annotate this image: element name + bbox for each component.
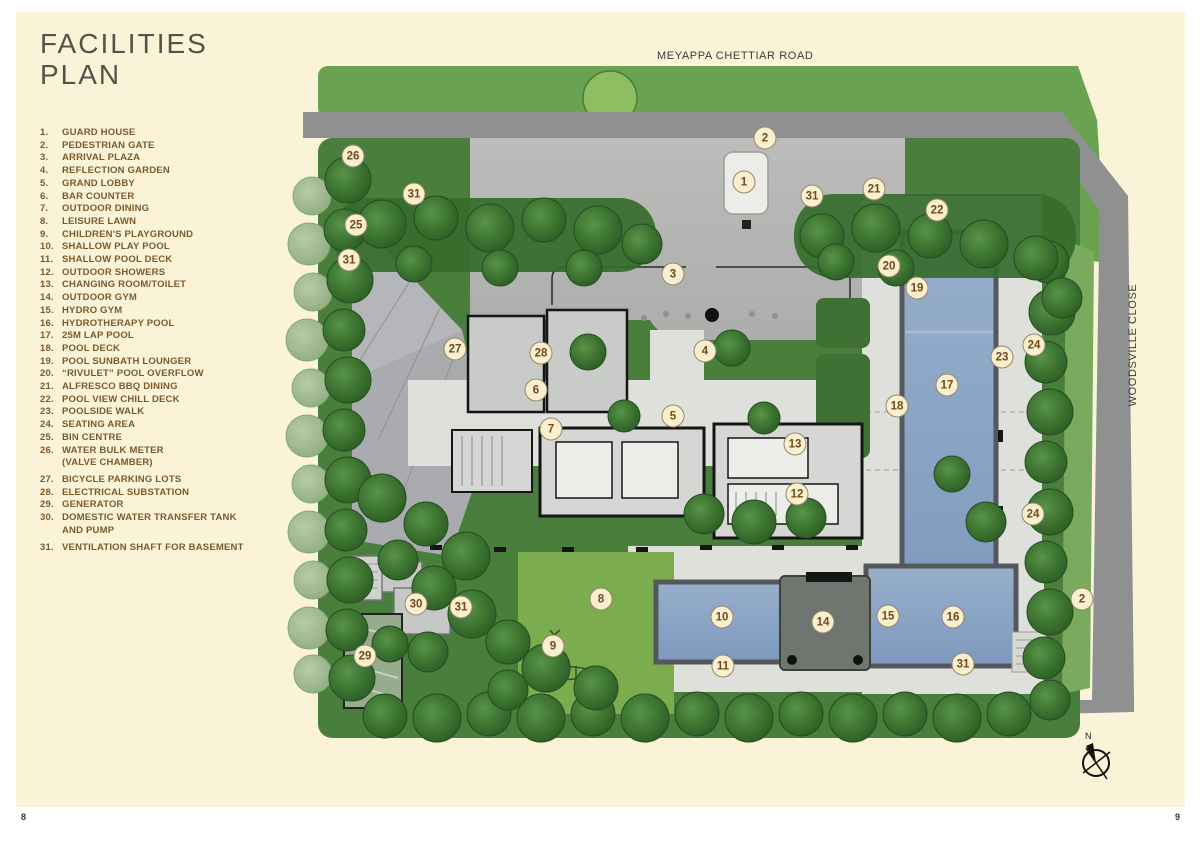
- legend-item-label: OUTDOOR SHOWERS: [62, 267, 290, 280]
- legend-item-number: 4.: [40, 165, 62, 178]
- legend-item: 31.VENTILATION SHAFT FOR BASEMENT: [40, 542, 290, 555]
- page-number-left: 8: [21, 812, 26, 822]
- facility-marker-16: 16: [942, 606, 965, 629]
- facility-marker-18: 18: [886, 395, 909, 418]
- legend-item-number: 24.: [40, 419, 62, 432]
- legend-item: 3.ARRIVAL PLAZA: [40, 152, 290, 165]
- legend-item: 7.OUTDOOR DINING: [40, 203, 290, 216]
- legend-item: 1.GUARD HOUSE: [40, 127, 290, 140]
- legend-item-label: POOL DECK: [62, 343, 290, 356]
- brochure-page: FACILITIES PLAN 1.GUARD HOUSE2.PEDESTRIA…: [0, 0, 1200, 846]
- legend-item-label: VENTILATION SHAFT FOR BASEMENT: [62, 542, 290, 555]
- legend-item-label: SHALLOW POOL DECK: [62, 254, 290, 267]
- legend-item-number: 14.: [40, 292, 62, 305]
- facility-marker-7: 7: [540, 418, 563, 441]
- legend-item: 9.CHILDREN'S PLAYGROUND: [40, 229, 290, 242]
- facility-marker-6: 6: [525, 379, 548, 402]
- legend-item: 19.POOL SUNBATH LOUNGER: [40, 356, 290, 369]
- legend-item: 20.“RIVULET” POOL OVERFLOW: [40, 368, 290, 381]
- legend-item: 2.PEDESTRIAN GATE: [40, 140, 290, 153]
- legend-item: 16.HYDROTHERAPY POOL: [40, 318, 290, 331]
- facility-marker-31: 31: [338, 249, 361, 272]
- legend-item-label: HYDRO GYM: [62, 305, 290, 318]
- legend-item: 27.BICYCLE PARKING LOTS: [40, 474, 290, 487]
- legend-item: 25.BIN CENTRE: [40, 432, 290, 445]
- facility-marker-13: 13: [784, 433, 807, 456]
- facility-marker-20: 20: [878, 255, 901, 278]
- facility-marker-26: 26: [342, 145, 365, 168]
- legend-item-number: 17.: [40, 330, 62, 343]
- compass-icon: [1083, 743, 1110, 779]
- page-title-line2: PLAN: [40, 59, 208, 90]
- facility-marker-14: 14: [812, 611, 835, 634]
- legend-item-label: DOMESTIC WATER TRANSFER TANKAND PUMP: [62, 512, 290, 537]
- legend-item-number: 21.: [40, 381, 62, 394]
- compass-north-label: N: [1085, 731, 1092, 741]
- legend-item: 4.REFLECTION GARDEN: [40, 165, 290, 178]
- legend-item-label: BAR COUNTER: [62, 191, 290, 204]
- facility-marker-4: 4: [694, 340, 717, 363]
- legend-item-label: BIN CENTRE: [62, 432, 290, 445]
- legend-item-label: 25M LAP POOL: [62, 330, 290, 343]
- facility-marker-29: 29: [354, 645, 377, 668]
- legend-item: 10.SHALLOW PLAY POOL: [40, 241, 290, 254]
- facility-marker-31: 31: [450, 596, 473, 619]
- legend-item-number: 10.: [40, 241, 62, 254]
- legend-item: 12.OUTDOOR SHOWERS: [40, 267, 290, 280]
- legend-item-label: ELECTRICAL SUBSTATION: [62, 487, 290, 500]
- facility-marker-23: 23: [991, 346, 1014, 369]
- legend-item-number: 23.: [40, 406, 62, 419]
- legend-item: 18.POOL DECK: [40, 343, 290, 356]
- facility-marker-3: 3: [662, 263, 685, 286]
- page-title-line1: FACILITIES: [40, 28, 208, 59]
- road-label-top: MEYAPPA CHETTIAR ROAD: [657, 50, 813, 62]
- legend-item: 5.GRAND LOBBY: [40, 178, 290, 191]
- facility-marker-2: 2: [1071, 588, 1094, 611]
- legend-item-number: 28.: [40, 487, 62, 500]
- legend-item: 17.25M LAP POOL: [40, 330, 290, 343]
- facility-marker-31: 31: [403, 183, 426, 206]
- facility-marker-11: 11: [712, 655, 735, 678]
- legend-item: 15.HYDRO GYM: [40, 305, 290, 318]
- legend-item-label: ALFRESCO BBQ DINING: [62, 381, 290, 394]
- legend-item-label: GUARD HOUSE: [62, 127, 290, 140]
- legend-item-number: 16.: [40, 318, 62, 331]
- legend-item-number: 5.: [40, 178, 62, 191]
- legend-item-number: 13.: [40, 279, 62, 292]
- legend-item-number: 2.: [40, 140, 62, 153]
- legend-item-number: 9.: [40, 229, 62, 242]
- facility-marker-2: 2: [754, 127, 777, 150]
- legend-item-number: 8.: [40, 216, 62, 229]
- legend-item-label: “RIVULET” POOL OVERFLOW: [62, 368, 290, 381]
- legend-item-number: 22.: [40, 394, 62, 407]
- legend-item: 6.BAR COUNTER: [40, 191, 290, 204]
- legend-item: 22.POOL VIEW CHILL DECK: [40, 394, 290, 407]
- legend-item: 8.LEISURE LAWN: [40, 216, 290, 229]
- road-label-right: WOODSVILLE CLOSE: [1127, 284, 1139, 407]
- legend-item: 21.ALFRESCO BBQ DINING: [40, 381, 290, 394]
- legend-item-label: GENERATOR: [62, 499, 290, 512]
- facility-marker-17: 17: [936, 374, 959, 397]
- legend-item-label: CHILDREN'S PLAYGROUND: [62, 229, 290, 242]
- legend-item-number: 15.: [40, 305, 62, 318]
- legend-item: 13.CHANGING ROOM/TOILET: [40, 279, 290, 292]
- legend-item-number: 26.: [40, 445, 62, 470]
- facility-marker-24: 24: [1023, 334, 1046, 357]
- legend-item-number: 19.: [40, 356, 62, 369]
- legend-item: 26.WATER BULK METER(VALVE CHAMBER): [40, 445, 290, 470]
- legend-item-label: GRAND LOBBY: [62, 178, 290, 191]
- legend-item-label: POOLSIDE WALK: [62, 406, 290, 419]
- plaza-tree-dot: [705, 308, 719, 322]
- legend-item-number: 31.: [40, 542, 62, 555]
- legend-item: 24.SEATING AREA: [40, 419, 290, 432]
- legend-item-number: 11.: [40, 254, 62, 267]
- facility-marker-15: 15: [877, 605, 900, 628]
- facility-marker-5: 5: [662, 405, 685, 428]
- legend-item-label: POOL SUNBATH LOUNGER: [62, 356, 290, 369]
- legend-item-label: POOL VIEW CHILL DECK: [62, 394, 290, 407]
- legend-item-label: OUTDOOR DINING: [62, 203, 290, 216]
- facility-marker-19: 19: [906, 277, 929, 300]
- legend-item: 30.DOMESTIC WATER TRANSFER TANKAND PUMP: [40, 512, 290, 537]
- legend-item-label: HYDROTHERAPY POOL: [62, 318, 290, 331]
- facility-marker-21: 21: [863, 178, 886, 201]
- facility-marker-10: 10: [711, 606, 734, 629]
- facility-marker-24: 24: [1022, 503, 1045, 526]
- legend-item-label: PEDESTRIAN GATE: [62, 140, 290, 153]
- legend-item-label: WATER BULK METER(VALVE CHAMBER): [62, 445, 290, 470]
- page-title: FACILITIES PLAN: [40, 28, 208, 91]
- legend-item-number: 27.: [40, 474, 62, 487]
- legend-item: 14.OUTDOOR GYM: [40, 292, 290, 305]
- page-number-right: 9: [1175, 812, 1180, 822]
- legend-item: 28.ELECTRICAL SUBSTATION: [40, 487, 290, 500]
- legend-item-number: 29.: [40, 499, 62, 512]
- facility-marker-30: 30: [405, 593, 428, 616]
- legend-item: 29.GENERATOR: [40, 499, 290, 512]
- legend-item-label: ARRIVAL PLAZA: [62, 152, 290, 165]
- facility-marker-1: 1: [733, 171, 756, 194]
- legend-item-number: 30.: [40, 512, 62, 537]
- legend-item-label: SHALLOW PLAY POOL: [62, 241, 290, 254]
- legend-item-number: 25.: [40, 432, 62, 445]
- legend-item-label: CHANGING ROOM/TOILET: [62, 279, 290, 292]
- legend-item-number: 7.: [40, 203, 62, 216]
- facility-marker-25: 25: [345, 214, 368, 237]
- legend-item-number: 6.: [40, 191, 62, 204]
- legend-item-number: 3.: [40, 152, 62, 165]
- legend-item-number: 20.: [40, 368, 62, 381]
- facility-marker-28: 28: [530, 342, 553, 365]
- legend-item-label: LEISURE LAWN: [62, 216, 290, 229]
- legend-item-label: SEATING AREA: [62, 419, 290, 432]
- legend-item-label: BICYCLE PARKING LOTS: [62, 474, 290, 487]
- legend-list: 1.GUARD HOUSE2.PEDESTRIAN GATE3.ARRIVAL …: [40, 127, 290, 554]
- legend-item: 23.POOLSIDE WALK: [40, 406, 290, 419]
- facility-marker-31: 31: [801, 185, 824, 208]
- legend-item-number: 12.: [40, 267, 62, 280]
- legend-item-number: 18.: [40, 343, 62, 356]
- facility-marker-12: 12: [786, 483, 809, 506]
- legend-item-number: 1.: [40, 127, 62, 140]
- facility-marker-9: 9: [542, 635, 565, 658]
- facility-marker-22: 22: [926, 199, 949, 222]
- facility-marker-31: 31: [952, 653, 975, 676]
- legend-item-label: REFLECTION GARDEN: [62, 165, 290, 178]
- legend-item: 11.SHALLOW POOL DECK: [40, 254, 290, 267]
- facility-marker-27: 27: [444, 338, 467, 361]
- legend-item-label: OUTDOOR GYM: [62, 292, 290, 305]
- facility-marker-8: 8: [590, 588, 613, 611]
